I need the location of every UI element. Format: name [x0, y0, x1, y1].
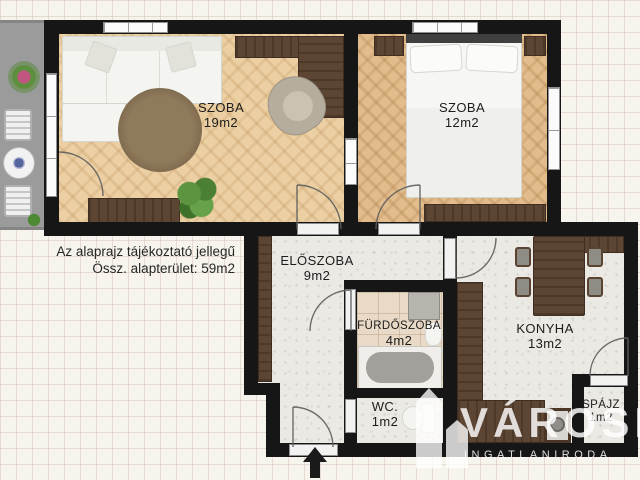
- wall: [244, 383, 280, 395]
- room-name: ELŐSZOBA: [280, 253, 353, 268]
- door-threshold: [444, 238, 456, 279]
- floor-plan: SZOBA 19m2 SZOBA 12m2 ELŐSZOBA 9m2 FÜRDŐ…: [0, 0, 640, 480]
- balcony-chair: [4, 109, 32, 141]
- wall: [44, 222, 638, 236]
- room-area: 4m2: [357, 333, 441, 348]
- room-area: 1m2: [372, 414, 399, 429]
- plan-note-line2: Össz. alapterület: 59m2: [40, 260, 235, 277]
- room-label-bedroom: SZOBA 12m2: [439, 100, 485, 130]
- wall: [244, 222, 258, 395]
- small-plant-icon: [27, 213, 41, 227]
- room-area: 13m2: [516, 336, 573, 351]
- door-threshold: [297, 223, 339, 235]
- wall: [344, 20, 358, 236]
- room-name: WC.: [372, 399, 399, 414]
- bed-bench: [424, 204, 546, 222]
- door-threshold: [378, 223, 420, 235]
- room-label-pantry: SPÁJZ 1m2: [582, 399, 620, 425]
- dining-chair: [587, 277, 603, 297]
- wall: [624, 222, 638, 457]
- sideboard: [88, 198, 180, 224]
- room-area: 19m2: [198, 115, 244, 130]
- window: [412, 22, 478, 33]
- window: [103, 22, 168, 33]
- dining-table: [533, 236, 585, 316]
- hall-closet: [258, 236, 272, 382]
- potted-flower-icon: [8, 61, 40, 93]
- toilet-bowl: [402, 406, 424, 430]
- nightstand: [524, 36, 546, 56]
- round-rug: [118, 88, 202, 172]
- balcony-table: [3, 147, 35, 179]
- bed-pillow: [409, 44, 462, 74]
- room-label-kitchen: KONYHA 13m2: [516, 321, 573, 351]
- bathtub: [358, 346, 442, 389]
- room-area: 9m2: [280, 268, 353, 283]
- plan-note: Az alaprajz tájékoztató jellegű Össz. al…: [40, 243, 235, 277]
- window: [548, 87, 560, 170]
- door-threshold: [590, 375, 628, 386]
- room-name: SPÁJZ: [582, 399, 620, 412]
- kitchen-counter: [457, 400, 545, 443]
- room-name: KONYHA: [516, 321, 573, 336]
- wall: [344, 388, 457, 398]
- room-name: FÜRDŐSZOBA: [357, 320, 441, 333]
- room-name: SZOBA: [439, 100, 485, 115]
- room-label-hallway: ELŐSZOBA 9m2: [280, 253, 353, 283]
- armchair-seat: [277, 85, 318, 126]
- room-label-wc: WC. 1m2: [372, 399, 399, 429]
- wall: [344, 280, 457, 292]
- bed-headboard: [406, 34, 522, 43]
- washer-drum: [550, 417, 565, 432]
- shower-unit: [408, 292, 440, 320]
- bed-pillow: [465, 44, 518, 74]
- room-area: 1m2: [582, 412, 620, 425]
- washing-machine: [544, 408, 571, 443]
- entrance-floor: [280, 390, 344, 443]
- balcony-chair: [4, 185, 32, 217]
- window: [345, 138, 357, 185]
- dining-chair: [515, 277, 531, 297]
- dining-chair: [515, 247, 531, 267]
- door-threshold: [345, 399, 356, 433]
- dining-chair: [587, 247, 603, 267]
- window: [46, 73, 57, 197]
- flower-decor-icon: [13, 157, 25, 169]
- room-label-living: SZOBA 19m2: [198, 100, 244, 130]
- bathtub-basin: [366, 352, 434, 383]
- room-label-bathroom: FÜRDŐSZOBA 4m2: [357, 320, 441, 348]
- plant-icon: [176, 176, 220, 220]
- room-area: 12m2: [439, 115, 485, 130]
- sofa-chaise: [62, 103, 126, 142]
- plan-note-line1: Az alaprajz tájékoztató jellegű: [40, 243, 235, 260]
- door-threshold: [345, 289, 356, 330]
- nightstand: [374, 36, 404, 56]
- kitchen-counter: [457, 282, 483, 402]
- room-name: SZOBA: [198, 100, 244, 115]
- balcony-area: [0, 20, 44, 230]
